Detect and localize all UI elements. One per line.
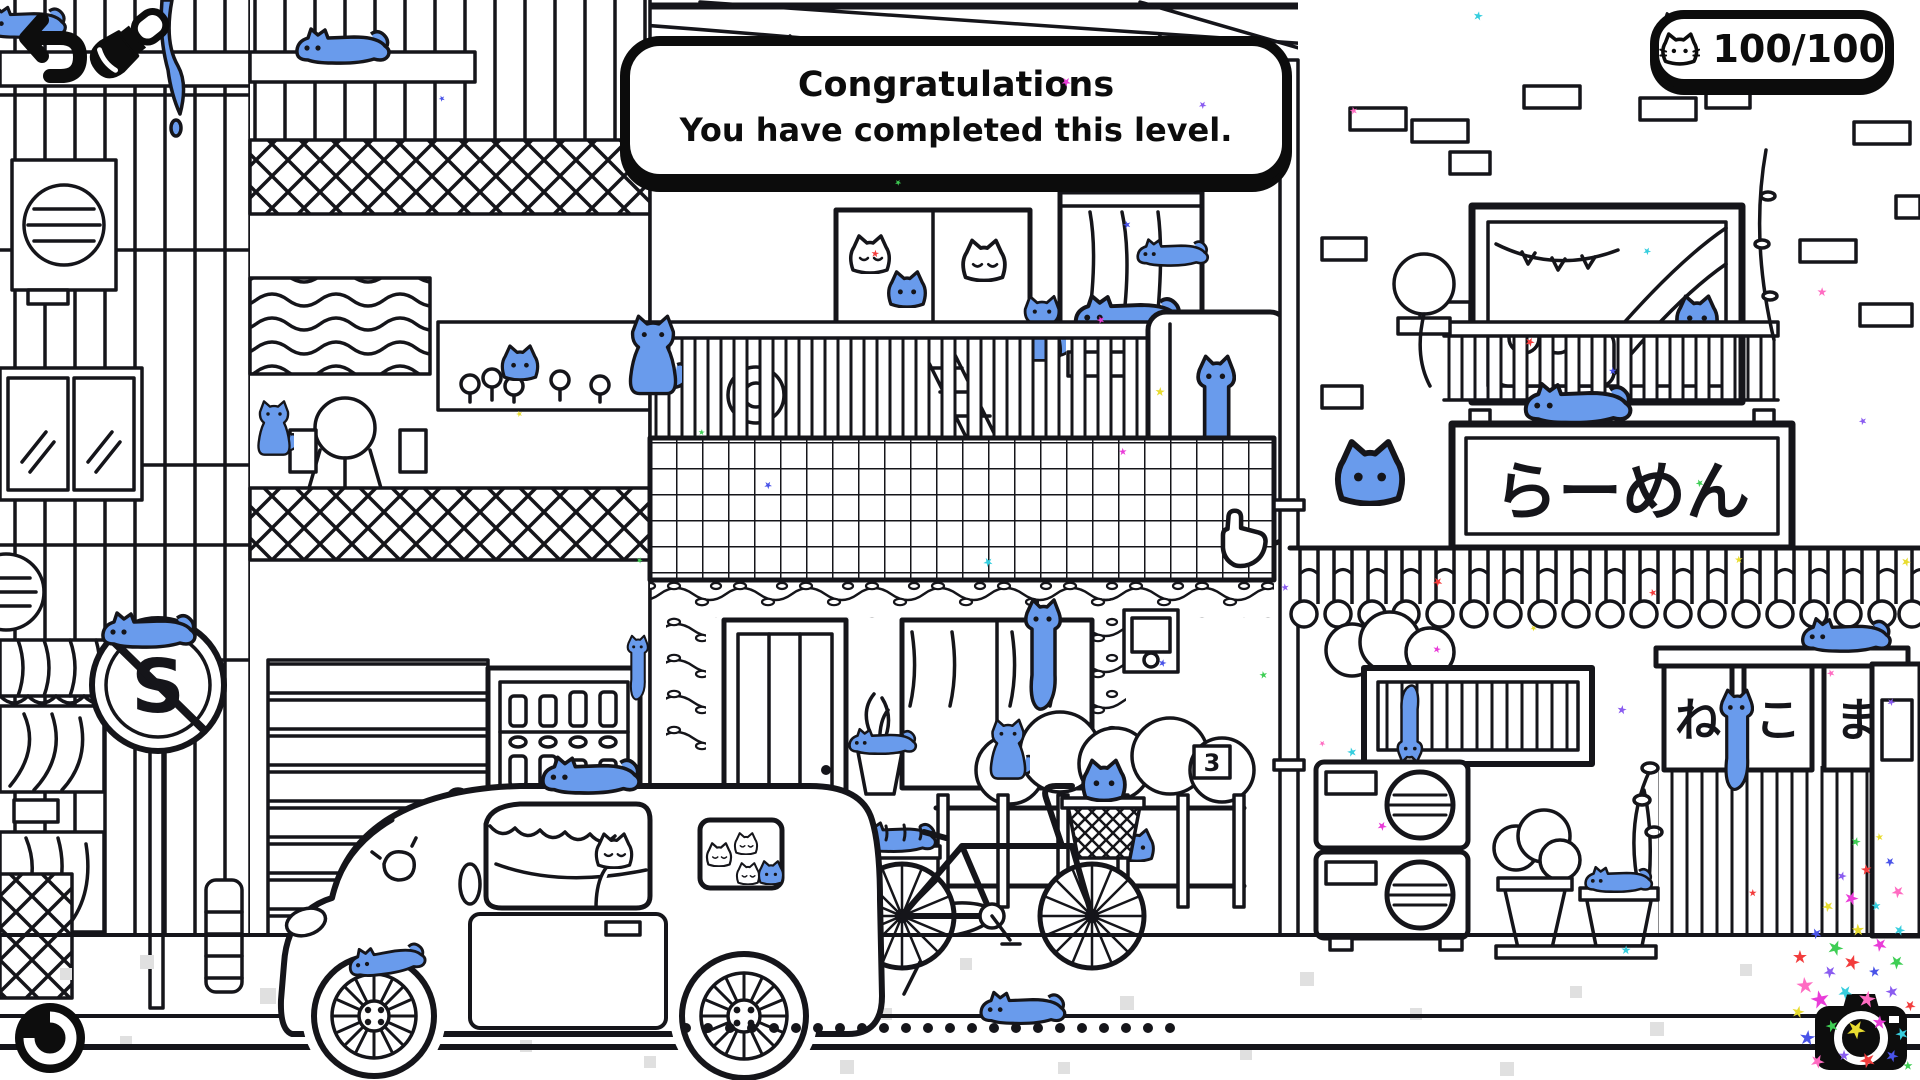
flower-window xyxy=(438,322,650,410)
vine-garland xyxy=(650,580,1274,618)
noren-char-ko: こ xyxy=(1755,693,1801,747)
upper-window-left xyxy=(836,210,1030,334)
noren-char-ne: ね xyxy=(1675,693,1721,747)
blue-kitten[interactable] xyxy=(759,861,783,884)
camera-button[interactable] xyxy=(1810,984,1912,1080)
camera-icon xyxy=(1810,984,1912,1080)
tile-wall xyxy=(650,438,1274,580)
blue-cat-in-basket[interactable] xyxy=(1083,761,1125,801)
white-cat-head[interactable] xyxy=(851,236,890,273)
cat-face-icon xyxy=(1659,24,1700,74)
ac-unit-top xyxy=(1316,762,1468,848)
white-kitten[interactable] xyxy=(735,833,757,854)
blue-cat-climbing-window[interactable] xyxy=(1026,600,1061,709)
climbing-vine xyxy=(666,598,706,758)
paintbrush-icon xyxy=(80,0,176,88)
banner-message: You have completed this level. xyxy=(630,108,1282,152)
cat-counter: 100/100 xyxy=(1650,10,1894,88)
van-side-window xyxy=(460,804,650,908)
level-complete-banner: Congratulations You have completed this … xyxy=(620,36,1292,184)
lattice-balcony-lower xyxy=(250,488,650,560)
banner-title: Congratulations xyxy=(630,62,1282,108)
brush-button[interactable] xyxy=(80,0,176,88)
blue-cat-vending[interactable] xyxy=(628,636,648,700)
shop-window-upper xyxy=(0,706,104,792)
address-number: 3 xyxy=(1204,749,1221,777)
white-cat-head[interactable] xyxy=(963,241,1005,281)
back-button[interactable] xyxy=(14,6,90,86)
left-building xyxy=(0,0,250,998)
blue-cat-on-road[interactable] xyxy=(981,992,1065,1023)
meter-box xyxy=(1124,610,1178,672)
ramen-shop: らーめん xyxy=(1274,0,1920,958)
replay-circle-icon xyxy=(12,1000,88,1076)
drain-pipe xyxy=(1274,60,1304,935)
side-door xyxy=(1872,664,1920,936)
blue-cat-over-roof[interactable] xyxy=(1338,442,1402,504)
game-screen: S xyxy=(0,0,1920,1080)
blue-paint-drop xyxy=(171,120,181,136)
ramen-sign-text: らーめん xyxy=(1494,456,1750,530)
ramen-sign: らーめん xyxy=(1452,410,1792,548)
blue-cat-hanging-noren[interactable] xyxy=(1721,690,1752,789)
undo-arrow-icon xyxy=(14,6,90,86)
blue-cat-upside-down[interactable] xyxy=(1398,685,1422,761)
replay-button[interactable] xyxy=(12,1000,88,1076)
ventilation-fan xyxy=(12,160,116,304)
address-plate: 3 xyxy=(1194,746,1230,778)
white-kitten[interactable] xyxy=(737,863,759,884)
lattice-balcony-upper xyxy=(250,140,650,214)
blue-cat-in-window[interactable] xyxy=(889,272,926,307)
shop-sign-slot xyxy=(14,800,58,822)
sliding-window xyxy=(0,368,142,500)
barred-window xyxy=(1364,668,1592,764)
white-kitten[interactable] xyxy=(707,843,731,866)
blue-cat-in-flowers[interactable] xyxy=(502,346,537,380)
van-rear-window xyxy=(700,820,783,888)
cat-counter-value: 100/100 xyxy=(1712,27,1885,71)
